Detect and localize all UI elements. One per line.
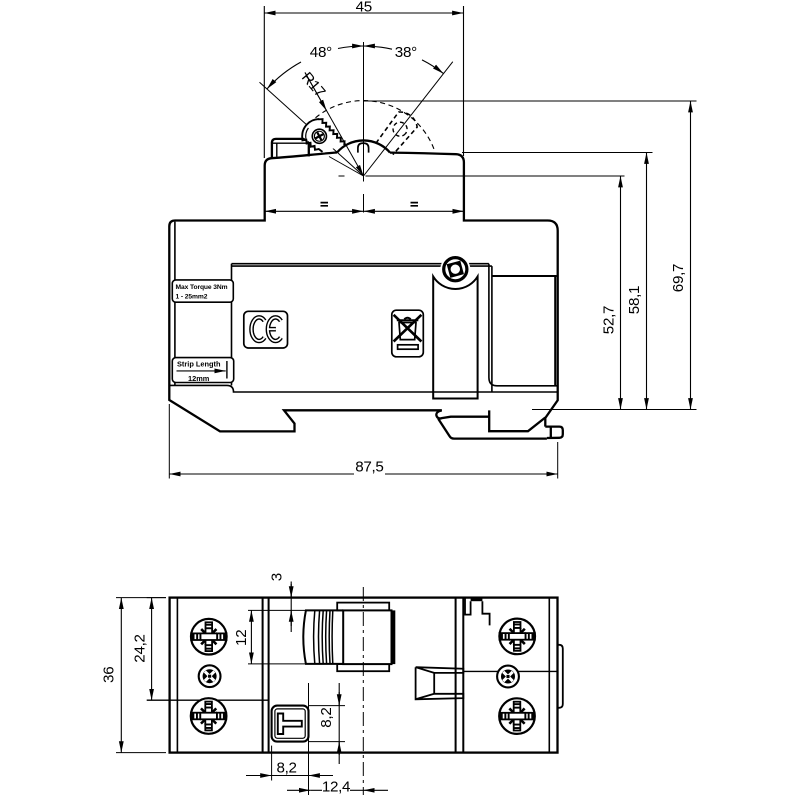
svg-text:58,1: 58,1 <box>626 286 643 314</box>
svg-text:87,5: 87,5 <box>355 459 383 476</box>
svg-text:12mm: 12mm <box>188 374 210 383</box>
svg-text:3: 3 <box>269 573 286 581</box>
svg-text:52,7: 52,7 <box>601 306 618 334</box>
svg-text:24,2: 24,2 <box>132 634 149 662</box>
svg-text:Max Torque 3Nm: Max Torque 3Nm <box>176 284 228 291</box>
svg-text:12,4: 12,4 <box>322 779 350 796</box>
svg-text:38°: 38° <box>395 44 417 61</box>
svg-text:8,2: 8,2 <box>318 707 335 727</box>
svg-text:69,7: 69,7 <box>670 264 687 292</box>
svg-text:8,2: 8,2 <box>276 760 296 777</box>
svg-text:36: 36 <box>101 667 118 683</box>
svg-text:Strip Length: Strip Length <box>177 360 221 369</box>
svg-text:48°: 48° <box>310 44 332 61</box>
svg-text:1 - 25mm2: 1 - 25mm2 <box>176 294 208 301</box>
svg-text:12: 12 <box>233 630 250 646</box>
svg-text:45: 45 <box>356 0 372 16</box>
